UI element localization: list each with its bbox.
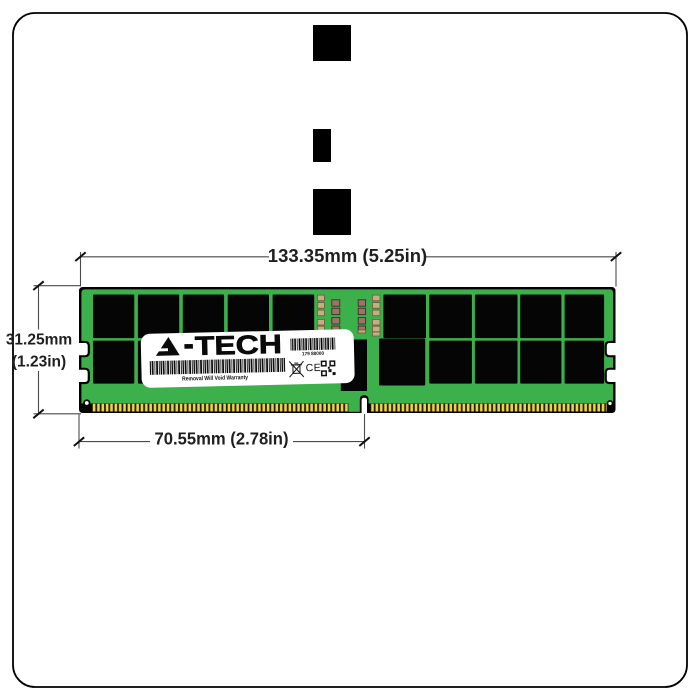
svg-text:31.25mm: 31.25mm (6, 332, 72, 349)
svg-text:179 88000: 179 88000 (302, 351, 324, 358)
svg-text:133.35mm (5.25in): 133.35mm (5.25in) (268, 245, 427, 266)
svg-text:70.55mm (2.78in): 70.55mm (2.78in) (155, 429, 289, 449)
svg-text:(1.23in): (1.23in) (12, 354, 66, 371)
svg-text:CE: CE (306, 362, 322, 374)
svg-text:TECH: TECH (195, 329, 283, 361)
